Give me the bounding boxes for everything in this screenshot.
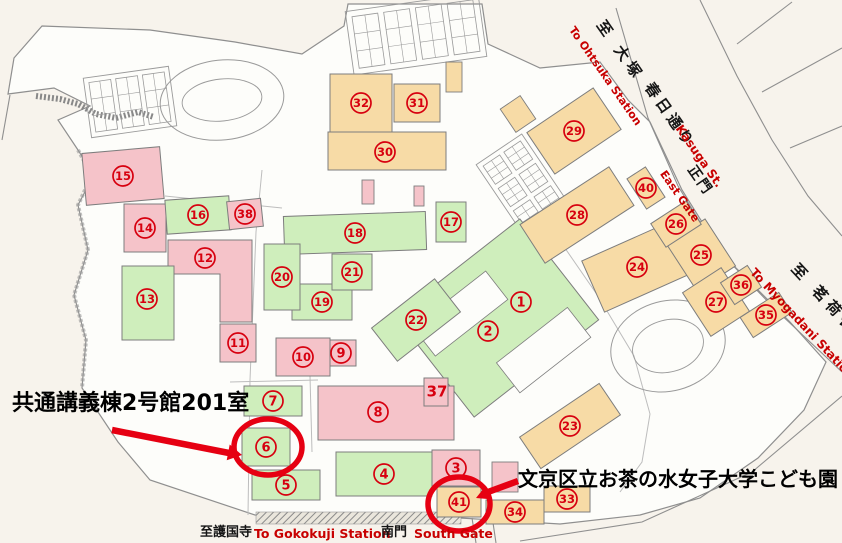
building-41-marker: 41 xyxy=(449,492,469,512)
svg-text:1: 1 xyxy=(516,296,525,311)
building-12-marker: 12 xyxy=(195,248,215,268)
svg-text:21: 21 xyxy=(344,265,360,279)
svg-text:19: 19 xyxy=(314,295,330,309)
gate-label-south-gate-en: South Gate xyxy=(414,527,493,541)
building-unlabeled-4 xyxy=(414,186,424,206)
svg-text:34: 34 xyxy=(507,505,523,519)
svg-text:18: 18 xyxy=(347,226,363,240)
building-13-marker: 13 xyxy=(137,289,157,309)
svg-text:25: 25 xyxy=(693,248,709,262)
svg-text:17: 17 xyxy=(443,215,459,229)
svg-text:29: 29 xyxy=(566,124,582,138)
svg-text:36: 36 xyxy=(733,278,749,292)
building-32-marker: 32 xyxy=(351,93,371,113)
svg-text:41: 41 xyxy=(451,495,467,509)
building-11-marker: 11 xyxy=(228,333,248,353)
svg-text:30: 30 xyxy=(377,145,393,159)
svg-text:24: 24 xyxy=(629,260,645,274)
building-30-marker: 30 xyxy=(375,142,395,162)
annotation-kodomoen-label: 文京区立お茶の水女子大学こども園 xyxy=(518,468,838,490)
svg-text:32: 32 xyxy=(353,96,369,110)
building-34-marker: 34 xyxy=(505,502,525,522)
building-24-marker: 24 xyxy=(627,257,647,277)
svg-text:2: 2 xyxy=(483,325,492,340)
svg-text:6: 6 xyxy=(261,441,270,456)
building-17-marker: 17 xyxy=(441,212,461,232)
svg-text:12: 12 xyxy=(197,251,213,265)
annotation-room-label: 共通講義棟2号館201室 xyxy=(12,392,249,416)
building-18-marker: 18 xyxy=(345,223,365,243)
svg-text:33: 33 xyxy=(559,492,575,506)
svg-text:9: 9 xyxy=(336,347,345,362)
svg-text:7: 7 xyxy=(268,395,277,410)
svg-text:8: 8 xyxy=(373,406,382,421)
gate-label-gokokuji-jp: 至護国寺 xyxy=(200,526,252,540)
svg-text:5: 5 xyxy=(281,479,290,494)
svg-text:23: 23 xyxy=(562,419,578,433)
building-37-marker: 37 xyxy=(427,382,448,400)
svg-text:38: 38 xyxy=(237,207,253,221)
campus-map: 1234567891011121314151617181920212223242… xyxy=(0,0,842,543)
svg-text:28: 28 xyxy=(569,208,585,222)
building-25-marker: 25 xyxy=(691,245,711,265)
building-21-marker: 21 xyxy=(342,262,362,282)
svg-text:26: 26 xyxy=(668,217,684,231)
svg-text:27: 27 xyxy=(708,295,724,309)
building-31-marker: 31 xyxy=(407,93,427,113)
svg-text:15: 15 xyxy=(115,169,131,183)
building-28-marker: 28 xyxy=(567,205,587,225)
building-33-marker: 33 xyxy=(557,489,577,509)
svg-text:10: 10 xyxy=(295,350,311,364)
svg-text:40: 40 xyxy=(638,181,654,195)
building-19-marker: 19 xyxy=(312,292,332,312)
svg-text:16: 16 xyxy=(190,208,206,222)
svg-text:11: 11 xyxy=(230,336,246,350)
building-23-marker: 23 xyxy=(560,416,580,436)
svg-text:20: 20 xyxy=(274,270,290,284)
building-38-marker: 38 xyxy=(235,204,255,224)
svg-text:22: 22 xyxy=(408,313,424,327)
building-unlabeled-1 xyxy=(446,62,462,92)
campus-map-drawing: 1234567891011121314151617181920212223242… xyxy=(0,0,842,543)
svg-text:4: 4 xyxy=(379,468,388,483)
svg-text:14: 14 xyxy=(137,221,153,235)
building-16-marker: 16 xyxy=(188,205,208,225)
building-20-marker: 20 xyxy=(272,267,292,287)
svg-text:37: 37 xyxy=(427,382,448,400)
svg-text:35: 35 xyxy=(758,308,774,322)
building-27-marker: 27 xyxy=(706,292,726,312)
building-15-marker: 15 xyxy=(113,166,133,186)
svg-text:31: 31 xyxy=(409,96,425,110)
building-40-marker: 40 xyxy=(636,178,656,198)
building-10-marker: 10 xyxy=(293,347,313,367)
building-22-marker: 22 xyxy=(406,310,426,330)
building-29-marker: 29 xyxy=(564,121,584,141)
building-35-marker: 35 xyxy=(756,305,776,325)
building-14-marker: 14 xyxy=(135,218,155,238)
gate-label-south-gate-jp: 南門 xyxy=(381,526,407,540)
building-26-marker: 26 xyxy=(666,214,686,234)
building-36-marker: 36 xyxy=(731,275,751,295)
gate-label-gokokuji-en: To Gokokuji Station xyxy=(254,527,391,541)
building-unlabeled-3 xyxy=(362,180,374,204)
svg-text:13: 13 xyxy=(139,292,155,306)
